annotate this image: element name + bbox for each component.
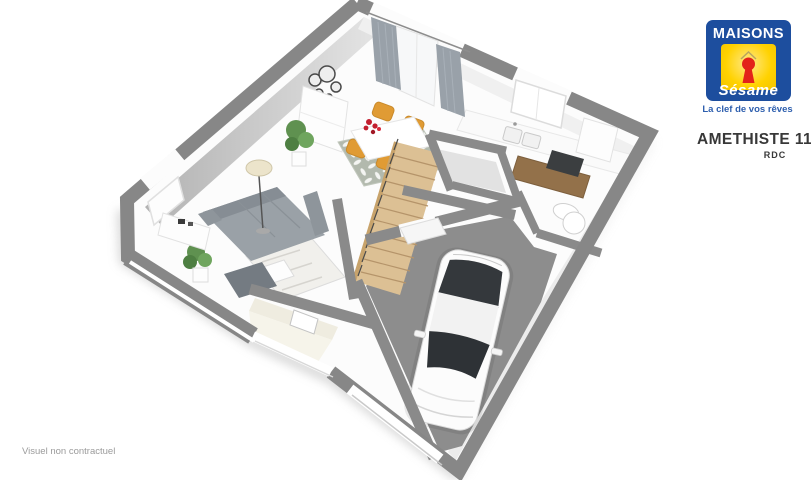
- plan-floor-label: RDC: [745, 150, 805, 160]
- logo-script-name: Sésame: [706, 82, 791, 99]
- plan-title: AMETHISTE 110 GI: [697, 131, 811, 149]
- maisons-sesame-logo: MAISONS Sésame: [706, 20, 791, 101]
- page: MAISONS Sésame La clef de vos rêves AMET…: [0, 0, 811, 480]
- logo-name: MAISONS: [706, 26, 791, 42]
- disclaimer-text: Visuel non contractuel: [22, 446, 115, 457]
- floor-plan-rendering: [0, 0, 811, 480]
- logo-tagline: La clef de vos rêves: [699, 104, 796, 115]
